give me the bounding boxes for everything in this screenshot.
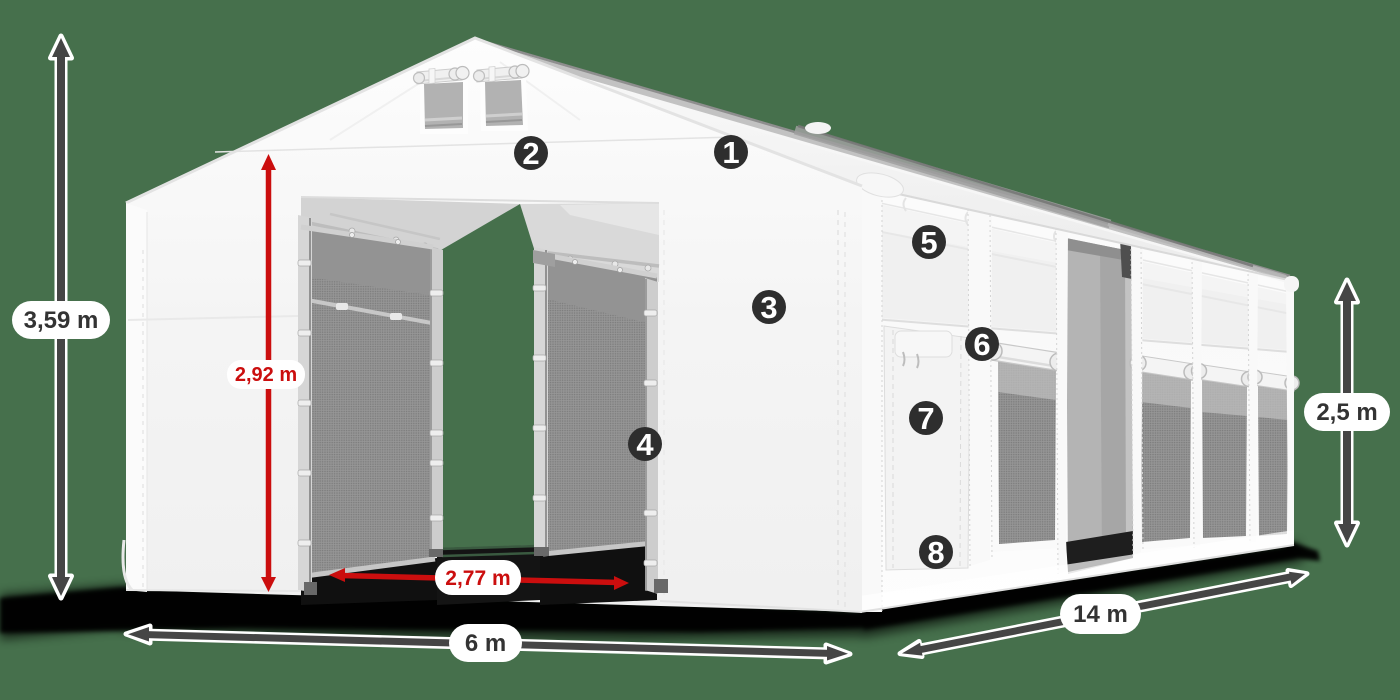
svg-text:2,77 m: 2,77 m [445, 567, 510, 590]
svg-text:1: 1 [722, 135, 739, 170]
svg-text:2: 2 [522, 136, 539, 171]
svg-text:6 m: 6 m [465, 630, 506, 657]
svg-text:2,92 m: 2,92 m [235, 364, 297, 386]
svg-text:8: 8 [927, 535, 944, 570]
svg-text:6: 6 [973, 327, 990, 362]
svg-text:3: 3 [760, 290, 777, 325]
svg-text:4: 4 [636, 427, 654, 462]
svg-text:5: 5 [920, 225, 937, 260]
svg-text:14 m: 14 m [1073, 601, 1128, 628]
svg-text:7: 7 [917, 401, 934, 436]
svg-text:2,5 m: 2,5 m [1316, 399, 1377, 426]
svg-text:3,59 m: 3,59 m [24, 307, 99, 334]
